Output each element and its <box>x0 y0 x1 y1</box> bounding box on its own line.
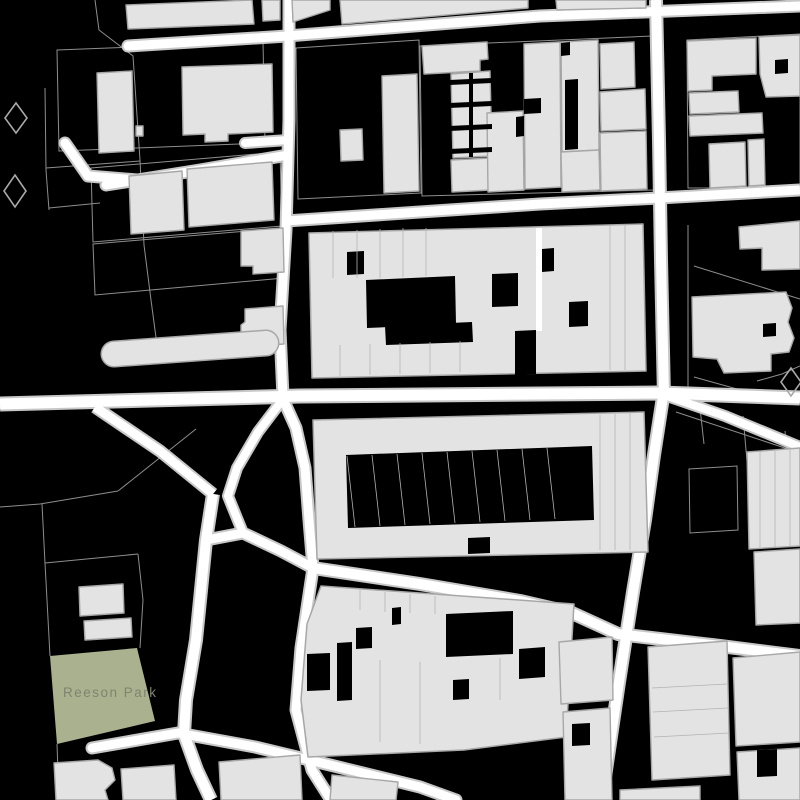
courtyard <box>542 248 554 272</box>
building <box>733 652 800 746</box>
building <box>422 42 488 74</box>
building <box>754 549 800 625</box>
building <box>340 129 363 161</box>
building <box>126 0 254 29</box>
long-pill-building <box>114 343 266 354</box>
courtyard <box>775 59 788 74</box>
building <box>451 158 491 192</box>
courtyard <box>492 273 518 307</box>
top-road-stub <box>245 140 288 143</box>
building <box>561 150 600 192</box>
courtyard <box>337 642 352 701</box>
courtyard <box>392 607 401 625</box>
courtyard <box>347 251 364 275</box>
building <box>219 755 302 800</box>
building <box>136 126 143 136</box>
courtyard <box>515 330 536 375</box>
courtyard <box>356 627 372 649</box>
building <box>382 74 419 193</box>
building <box>97 71 134 153</box>
alleys-layer <box>536 228 542 331</box>
courtyard <box>524 98 541 114</box>
building <box>262 0 280 21</box>
building <box>709 142 746 188</box>
building <box>648 641 730 780</box>
courtyard <box>572 723 590 746</box>
building <box>747 448 800 549</box>
building <box>182 64 273 142</box>
courtyard <box>757 749 777 777</box>
courtyard <box>453 679 469 700</box>
courtyard <box>346 446 594 528</box>
building <box>600 42 635 89</box>
courtyard <box>763 323 776 337</box>
building <box>689 113 763 136</box>
building <box>79 584 124 616</box>
building <box>121 765 176 800</box>
building <box>600 131 647 191</box>
courtyard <box>366 276 456 328</box>
map-canvas[interactable]: Reeson Park <box>0 0 800 800</box>
building <box>84 618 132 640</box>
building <box>600 89 646 131</box>
building <box>556 0 646 10</box>
building <box>187 162 274 227</box>
park-label: Reeson Park <box>63 685 158 700</box>
building <box>129 171 184 234</box>
map-svg[interactable]: Reeson Park <box>0 0 800 800</box>
courtyard <box>569 301 588 327</box>
row2-center-block <box>309 224 646 378</box>
building <box>559 637 613 704</box>
courtyard <box>516 116 524 137</box>
alley <box>536 228 542 331</box>
courtyard <box>307 653 330 691</box>
courtyard <box>446 611 513 657</box>
building <box>689 91 739 114</box>
courtyard <box>519 647 545 679</box>
building <box>748 139 765 186</box>
courtyard <box>565 79 578 150</box>
courtyard <box>468 537 490 554</box>
building <box>524 42 561 189</box>
building <box>54 760 115 800</box>
building <box>563 708 612 800</box>
courtyard <box>561 42 570 56</box>
courtyard <box>469 73 473 157</box>
